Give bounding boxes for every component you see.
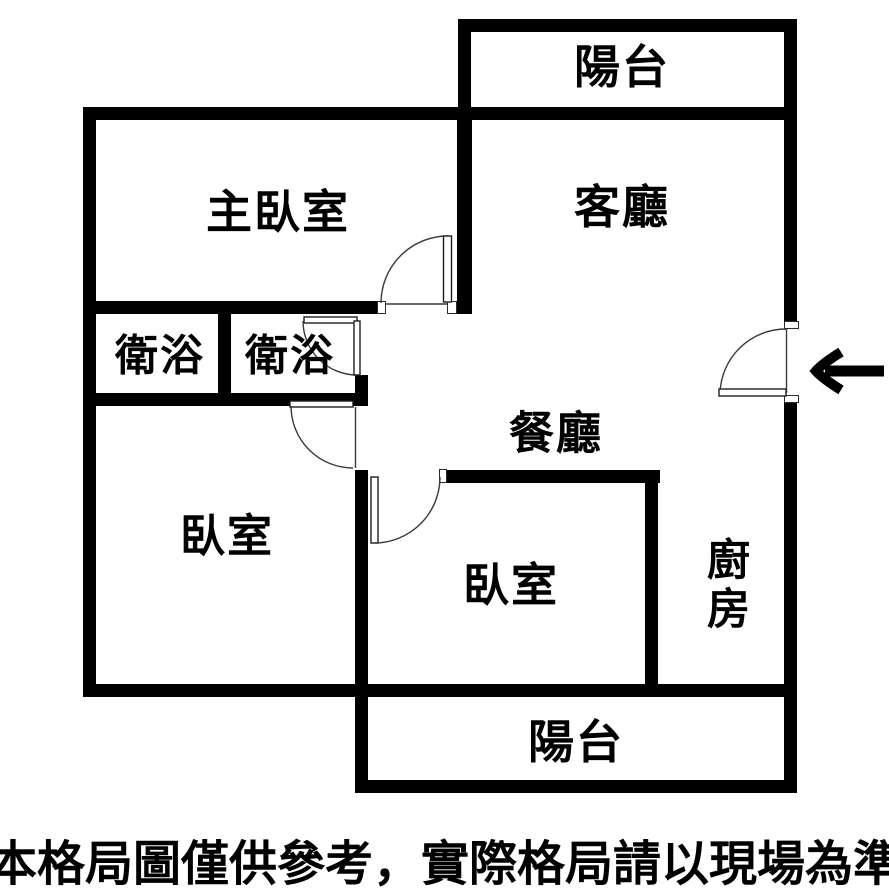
floorplan: 陽台 主臥室 客廳 衛浴 衛浴 餐廳 臥室 臥室 廚房 陽台 本格局圖僅供參考，… <box>0 0 889 892</box>
room-label-bathroom-2: 衛浴 <box>245 336 335 379</box>
entrance-door <box>719 329 787 396</box>
disclaimer-text: 本格局圖僅供參考，實際格局請以現場為準 <box>0 824 889 892</box>
room-label-balcony-top: 陽台 <box>574 44 670 90</box>
door-swing-layer <box>0 0 889 892</box>
bedroom-center-door <box>371 477 440 543</box>
room-label-dining-room: 餐廳 <box>509 411 603 456</box>
room-label-balcony-bottom: 陽台 <box>528 719 624 765</box>
room-label-living-room: 客廳 <box>574 184 670 230</box>
bedroom-left-door <box>290 401 356 468</box>
entrance-arrow-icon <box>816 352 884 390</box>
room-label-bedroom-center: 臥室 <box>463 562 559 608</box>
master-bedroom-door <box>381 236 452 304</box>
room-label-bathroom-1: 衛浴 <box>115 336 205 379</box>
room-label-bedroom-left: 臥室 <box>180 514 274 559</box>
room-label-kitchen: 廚房 <box>703 537 746 635</box>
room-label-master-bedroom: 主臥室 <box>206 189 350 235</box>
